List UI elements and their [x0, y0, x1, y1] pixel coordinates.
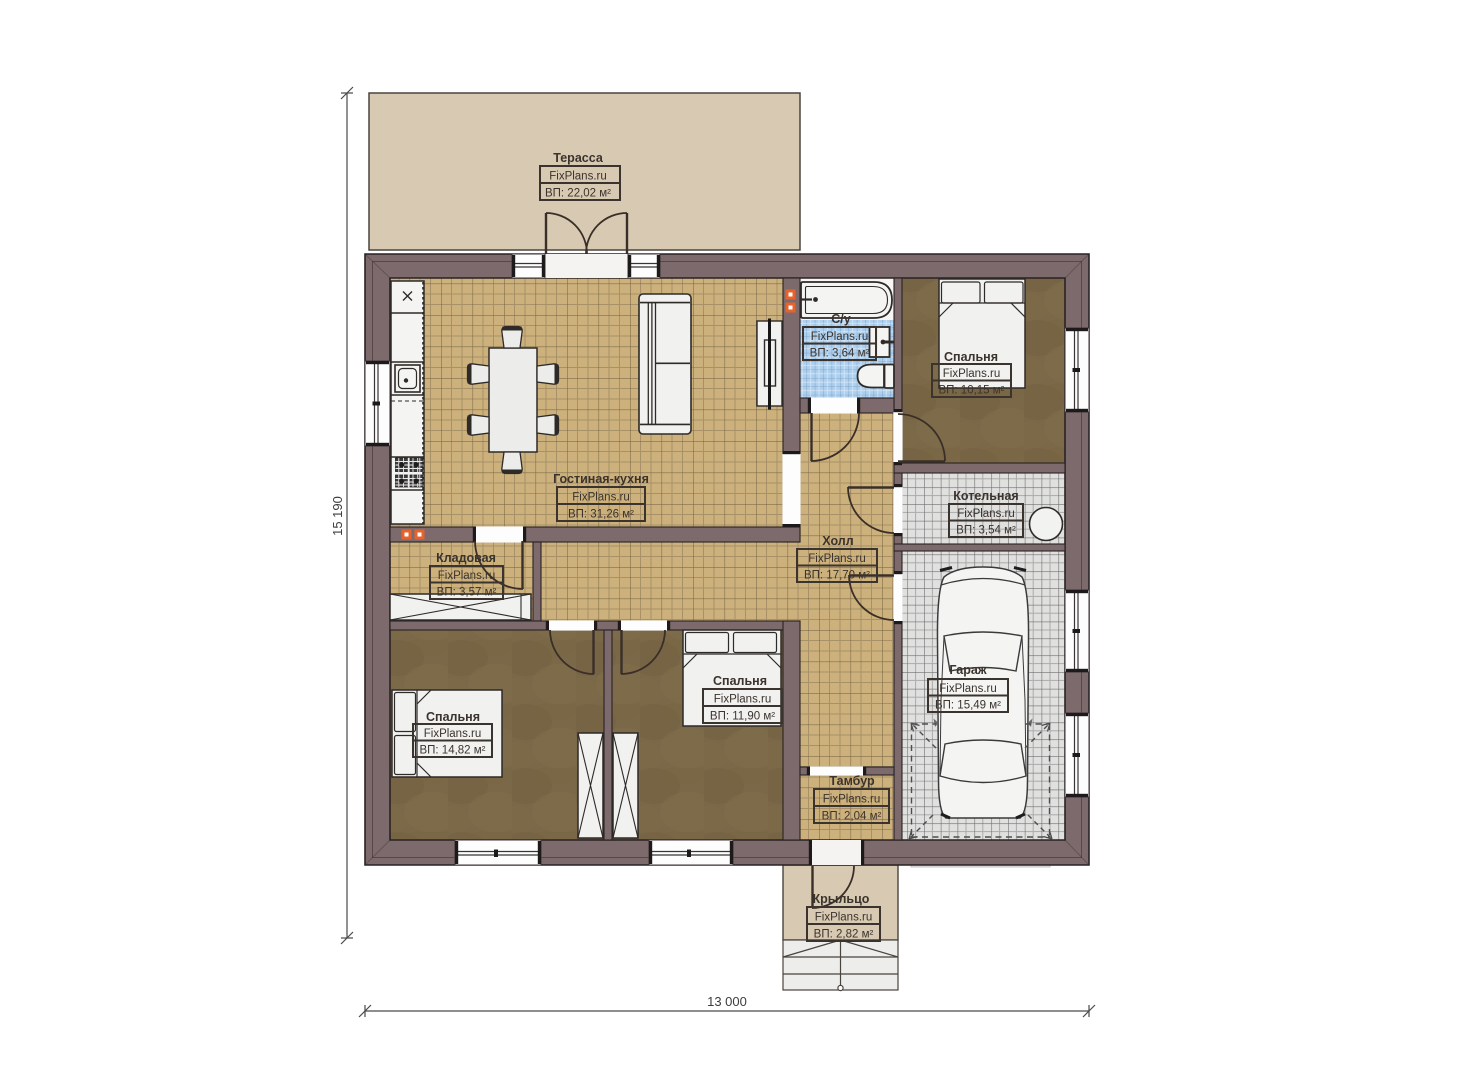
svg-text:FixPlans.ru: FixPlans.ru	[572, 492, 630, 504]
svg-text:FixPlans.ru: FixPlans.ru	[714, 694, 772, 706]
svg-text:ВП: 11,90 м²: ВП: 11,90 м²	[710, 711, 775, 723]
svg-text:FixPlans.ru: FixPlans.ru	[939, 683, 997, 695]
svg-text:С/у: С/у	[831, 312, 851, 326]
svg-text:ВП: 3,64 м²: ВП: 3,64 м²	[810, 348, 870, 360]
svg-text:ВП: 22,02 м²: ВП: 22,02 м²	[545, 188, 611, 200]
svg-text:Спальня: Спальня	[944, 350, 998, 364]
svg-text:ВП: 17,70 м²: ВП: 17,70 м²	[804, 570, 870, 582]
svg-text:15 190: 15 190	[330, 496, 345, 536]
svg-text:Холл: Холл	[822, 534, 853, 548]
svg-text:Спальня: Спальня	[713, 674, 767, 688]
svg-text:FixPlans.ru: FixPlans.ru	[424, 728, 482, 740]
svg-text:Терасса: Терасса	[553, 151, 604, 165]
svg-text:ВП: 2,04 м²: ВП: 2,04 м²	[822, 811, 882, 823]
svg-text:ВП: 14,82 м²: ВП: 14,82 м²	[419, 745, 485, 757]
svg-text:Гараж: Гараж	[949, 663, 986, 677]
svg-text:Крыльцо: Крыльцо	[813, 892, 870, 906]
svg-text:FixPlans.ru: FixPlans.ru	[811, 331, 869, 343]
svg-text:FixPlans.ru: FixPlans.ru	[808, 553, 866, 565]
svg-text:FixPlans.ru: FixPlans.ru	[823, 794, 881, 806]
svg-text:ВП: 3,54 м²: ВП: 3,54 м²	[956, 525, 1016, 537]
svg-text:FixPlans.ru: FixPlans.ru	[438, 570, 496, 582]
svg-text:13 000: 13 000	[707, 994, 747, 1009]
svg-text:Тамбур: Тамбур	[829, 774, 875, 788]
svg-text:Спальня: Спальня	[426, 710, 480, 724]
svg-text:Кладовая: Кладовая	[436, 551, 496, 565]
svg-text:FixPlans.ru: FixPlans.ru	[815, 912, 873, 924]
svg-text:FixPlans.ru: FixPlans.ru	[943, 368, 1001, 380]
svg-text:ВП: 15,49 м²: ВП: 15,49 м²	[935, 700, 1001, 712]
svg-text:Котельная: Котельная	[953, 489, 1018, 503]
svg-text:FixPlans.ru: FixPlans.ru	[549, 171, 607, 183]
svg-text:ВП: 3,57 м²: ВП: 3,57 м²	[437, 587, 497, 599]
svg-text:FixPlans.ru: FixPlans.ru	[957, 508, 1015, 520]
svg-text:Гостиная-кухня: Гостиная-кухня	[553, 472, 649, 486]
svg-text:ВП: 10,15 м²: ВП: 10,15 м²	[938, 385, 1004, 397]
svg-text:ВП: 2,82 м²: ВП: 2,82 м²	[814, 929, 874, 941]
svg-text:ВП: 31,26 м²: ВП: 31,26 м²	[568, 509, 634, 521]
